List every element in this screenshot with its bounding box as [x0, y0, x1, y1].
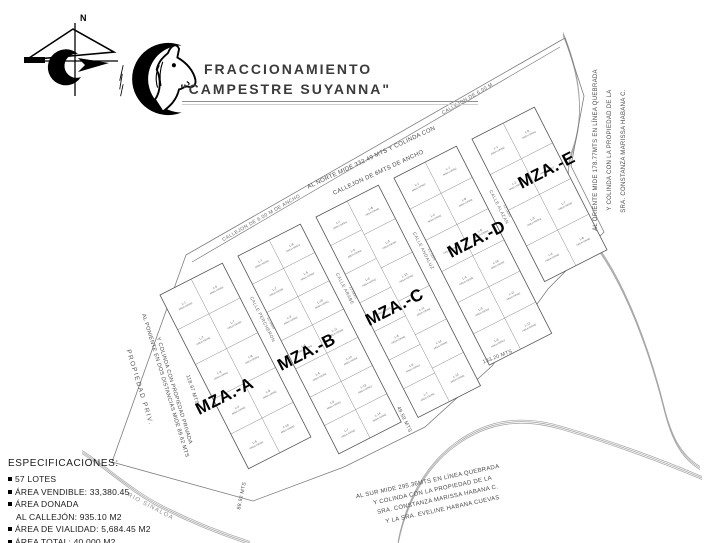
- bullet-square-icon: [8, 540, 12, 543]
- spec-item-text: ÁREA DE VIALIDAD: 5,684.45 M2: [15, 524, 151, 534]
- specifications-block: ESPECIFICACIONES: 57 LOTESÁREA VENDIBLE:…: [8, 458, 151, 543]
- bullet-square-icon: [8, 477, 12, 481]
- river-path: [398, 422, 702, 543]
- spec-item-text: ÁREA VENDIBLE: 33,380.45: [15, 487, 129, 497]
- spec-item: ÁREA TOTAL: 40,000 M2: [8, 537, 151, 543]
- subdivision-name: "CAMPESTRE SUYANNA": [180, 81, 391, 97]
- north-compass-icon: N: [12, 8, 120, 100]
- boundary-text-west: Y COLINDA CON PROPIEDAD PRIVADA: [155, 337, 193, 445]
- spec-item-text: AL CALLEJÓN: 935.10 M2: [16, 512, 122, 522]
- spec-item: ÁREA DE VIALIDAD: 5,684.45 M2: [8, 524, 151, 534]
- boundary-text-east: Y COLINDA CON LA PROPIEDAD DE LA: [607, 89, 613, 210]
- compass-north-label: N: [80, 13, 87, 23]
- bullet-square-icon: [8, 527, 12, 531]
- spec-item-text: ÁREA TOTAL: 40,000 M2: [15, 537, 116, 543]
- bullet-square-icon: [8, 490, 12, 494]
- spec-item-text: ÁREA DONADA: [15, 499, 79, 509]
- specifications-heading: ESPECIFICACIONES:: [8, 458, 151, 469]
- bullet-square-icon: [8, 502, 12, 506]
- horse-crescent-logo: [118, 36, 204, 122]
- title-underline: [182, 101, 478, 105]
- boundary-text-east: SRA. CONSTANZA MARISSA HABANA C.: [621, 89, 627, 213]
- spec-item: ÁREA VENDIBLE: 33,380.45: [8, 487, 151, 497]
- spec-item: 57 LOTES: [8, 474, 151, 484]
- subdivision-title: FRACCIONAMIENTO: [204, 61, 372, 77]
- specifications-list: 57 LOTESÁREA VENDIBLE: 33,380.45ÁREA DON…: [8, 474, 151, 543]
- spec-item: ÁREA DONADA: [8, 499, 151, 509]
- spec-item-text: 57 LOTES: [15, 474, 56, 484]
- alley-label: CALLEJON DE 6.00 M: [441, 82, 494, 116]
- boundary-text-east: AL ORIENTE MIDE 178.77MTS EN LÍNEA QUEBR…: [592, 69, 599, 231]
- spec-item: AL CALLEJÓN: 935.10 M2: [8, 512, 151, 522]
- plat-map-page: RIO SINALOAL-1AREA=585M2L-2AREA=585M2L-3…: [0, 0, 718, 543]
- dimension-label: 118.97 MTS: [184, 374, 199, 405]
- dimension-label: 88.92 MTS: [236, 481, 248, 510]
- river-path: [398, 423, 702, 543]
